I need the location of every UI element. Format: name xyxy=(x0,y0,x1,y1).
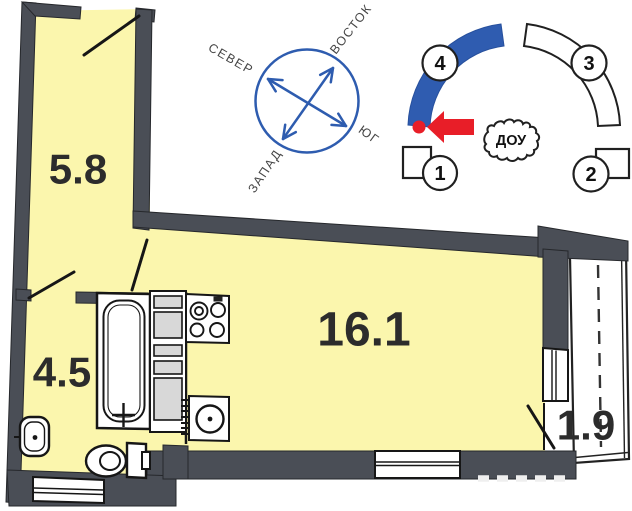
site-plan: ДОУ 4 3 1 2 xyxy=(403,24,629,192)
vent-hatch xyxy=(181,400,190,434)
building-4-badge: 4 xyxy=(434,53,446,75)
window-bottom-main xyxy=(375,451,460,478)
building-2-badge: 2 xyxy=(585,164,596,186)
wall-segment xyxy=(543,249,568,350)
window-balcony xyxy=(543,348,568,401)
floor-plan-page: 5.8 4.5 16.1 1.9 СЕВЕР ВОСТОК ЮГ ЗАПАД xyxy=(0,0,632,511)
room-label-balcony: 1.9 xyxy=(557,402,615,449)
dou-building: ДОУ xyxy=(484,119,539,161)
wall-segment xyxy=(163,445,188,479)
bathtub xyxy=(97,293,150,429)
building-1-badge: 1 xyxy=(434,163,445,185)
building-badges: 4 3 1 2 xyxy=(423,46,609,192)
wall-segment xyxy=(147,451,576,479)
room-label-living-kitchen: 16.1 xyxy=(317,304,410,357)
floor-plan-drawing: 5.8 4.5 16.1 1.9 СЕВЕР ВОСТОК ЮГ ЗАПАД xyxy=(0,0,632,511)
stove-handle xyxy=(214,297,223,302)
kitchen-sink xyxy=(181,396,229,441)
compass-arrows-icon xyxy=(268,68,346,139)
toilet xyxy=(86,443,150,478)
compass-label-west: ЗАПАД xyxy=(245,147,284,196)
location-dot-icon xyxy=(413,121,426,134)
kitchen-stove xyxy=(186,294,229,343)
wall-segment xyxy=(133,9,152,230)
cabinets xyxy=(150,291,186,432)
compass-label-east: ВОСТОК xyxy=(327,1,375,56)
compass-label-north: СЕВЕР xyxy=(206,40,256,77)
room-label-bathroom: 4.5 xyxy=(33,349,91,396)
building-arc-3 xyxy=(524,24,620,126)
window-bottom-left xyxy=(33,477,104,503)
room-label-hallway: 5.8 xyxy=(49,146,107,193)
compass-label-south: ЮГ xyxy=(356,123,382,147)
location-arrow-icon xyxy=(427,111,474,143)
compass-rose: СЕВЕР ВОСТОК ЮГ ЗАПАД xyxy=(206,1,382,195)
dou-label: ДОУ xyxy=(496,133,527,149)
building-arc-4-highlighted xyxy=(408,24,504,127)
building-3-badge: 3 xyxy=(583,53,594,75)
